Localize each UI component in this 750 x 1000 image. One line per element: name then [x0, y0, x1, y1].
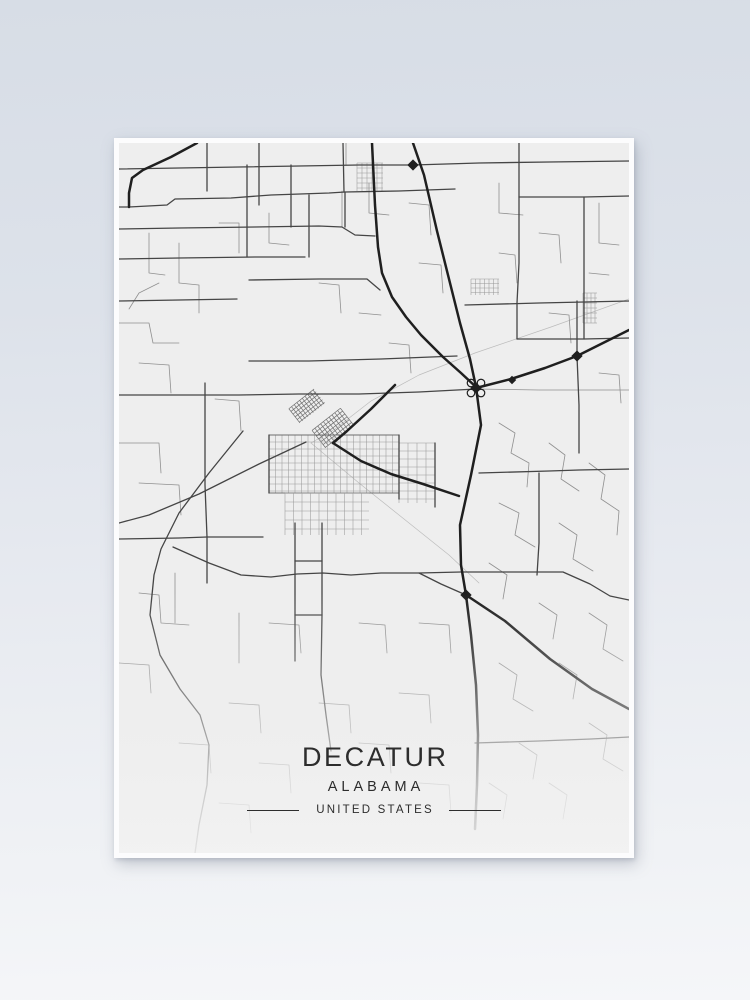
city-name: DECATUR [119, 743, 629, 771]
wall-background: { "poster": { "title": "DECATUR", "subti… [0, 0, 750, 1000]
map-poster: DECATUR ALABAMA UNITED STATES [114, 138, 634, 858]
title-block: DECATUR ALABAMA UNITED STATES [119, 743, 629, 816]
left-rule [247, 810, 299, 812]
country-name: UNITED STATES [314, 804, 434, 816]
right-rule [449, 810, 501, 812]
city-street-map: DECATUR ALABAMA UNITED STATES [119, 143, 629, 853]
state-name: ALABAMA [119, 779, 629, 795]
caption-row: UNITED STATES [119, 804, 629, 816]
